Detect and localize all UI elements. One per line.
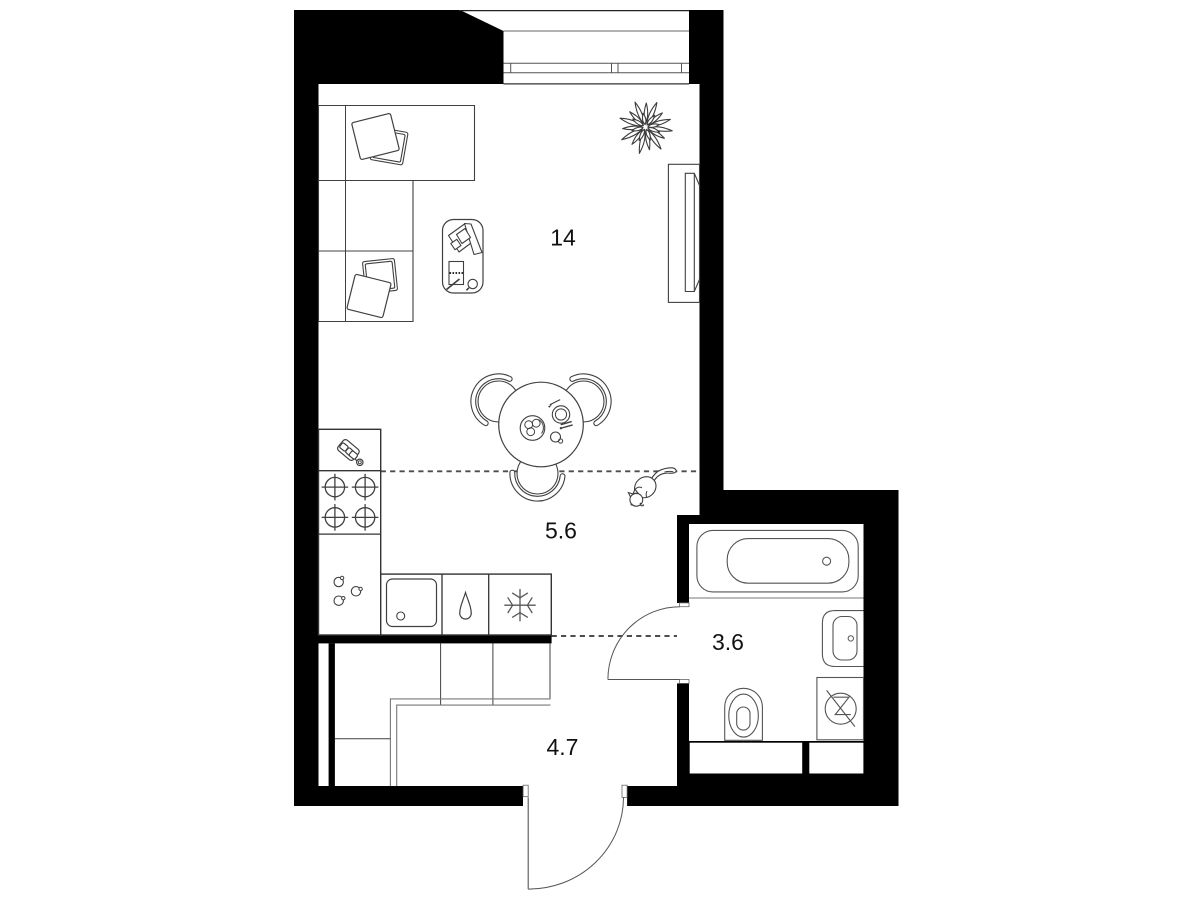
svg-text:14: 14	[550, 225, 576, 251]
svg-text:4.7: 4.7	[547, 734, 579, 760]
svg-text:5.6: 5.6	[545, 518, 577, 544]
svg-text:3.6: 3.6	[712, 629, 744, 655]
